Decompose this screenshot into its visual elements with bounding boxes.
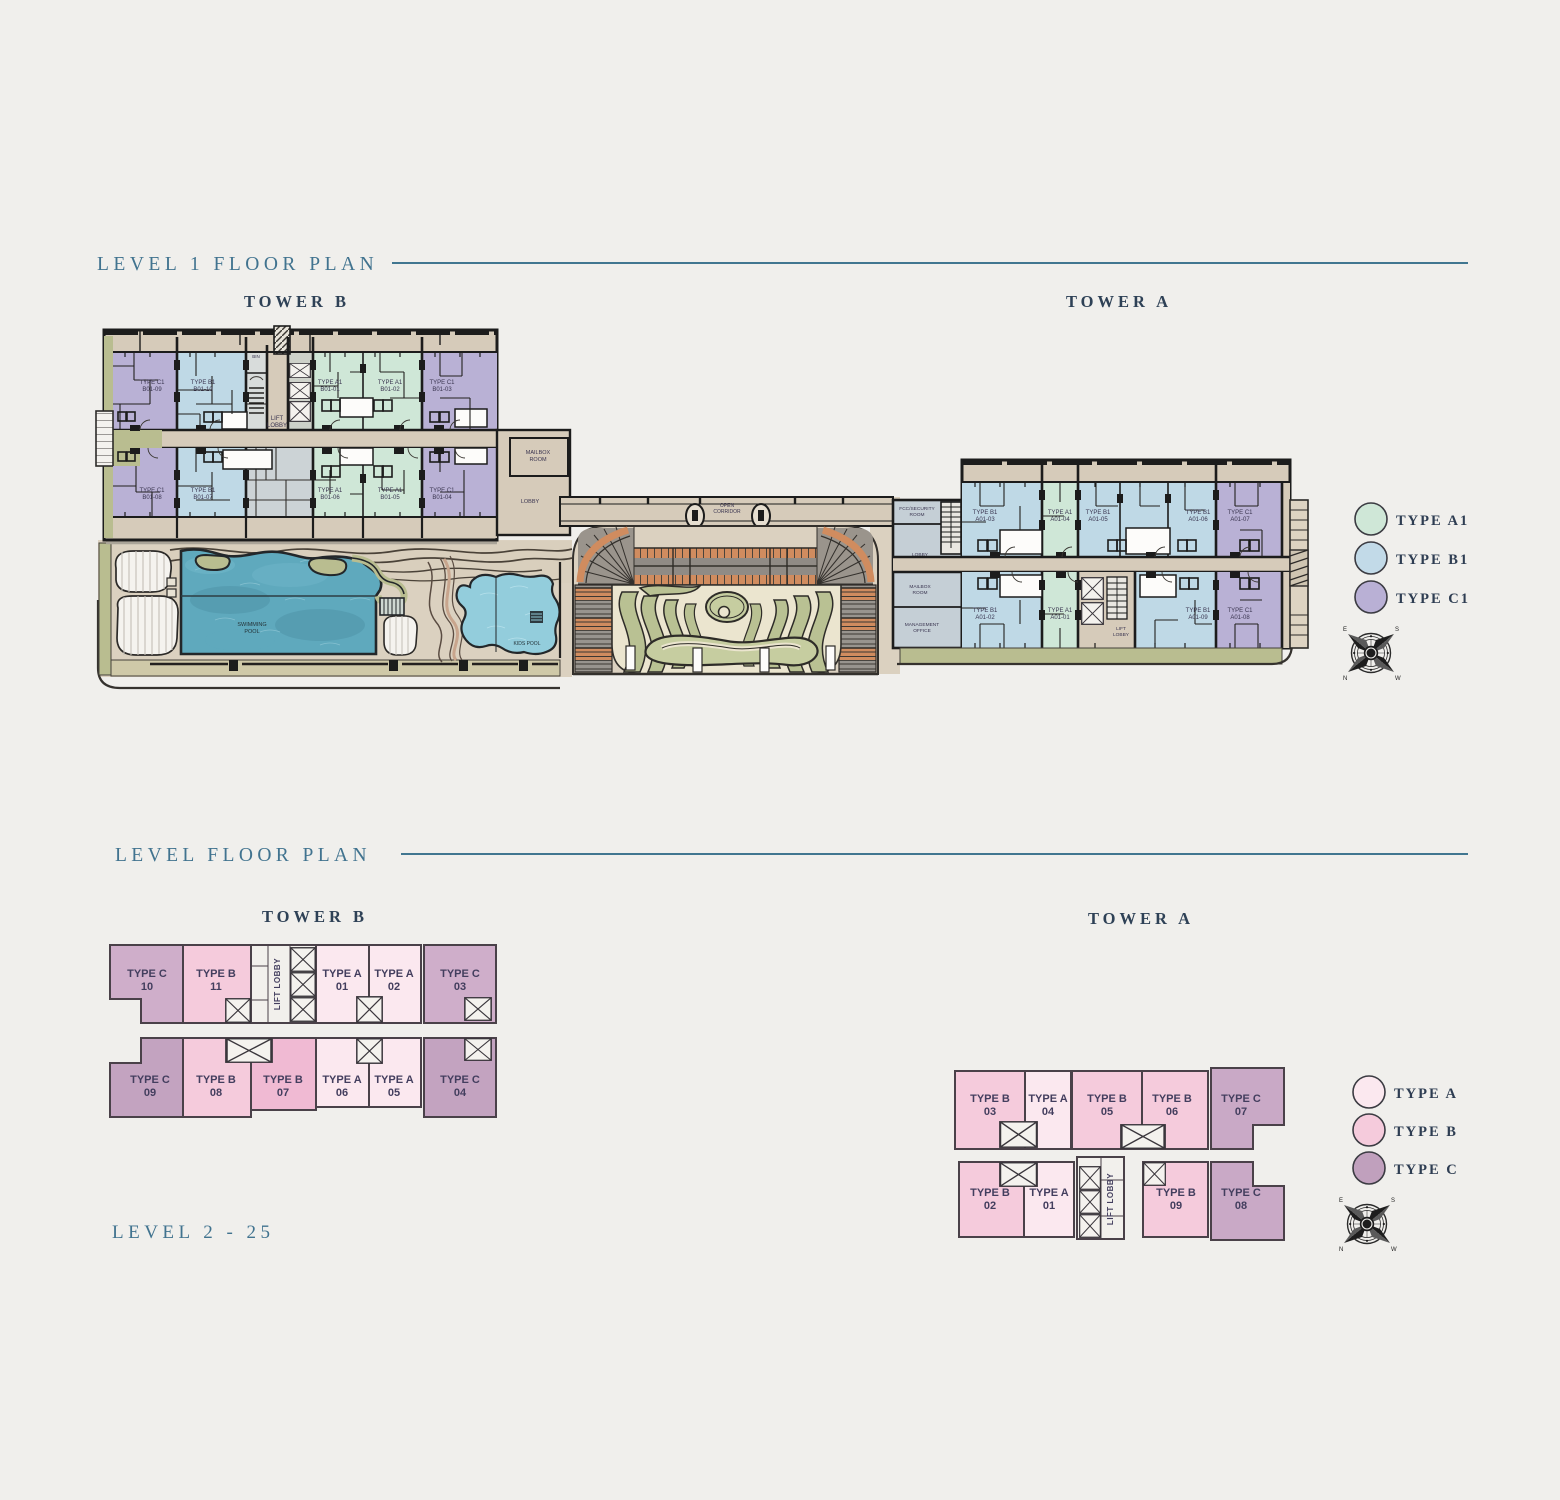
svg-text:ROOM: ROOM xyxy=(910,512,925,518)
svg-text:TYPE A1: TYPE A1 xyxy=(318,488,343,494)
svg-text:TYPE C1: TYPE C1 xyxy=(1227,510,1253,516)
svg-text:A01-02: A01-02 xyxy=(975,615,995,621)
svg-text:A01-09: A01-09 xyxy=(1188,615,1208,621)
svg-text:TYPE B: TYPE B xyxy=(970,1187,1010,1199)
svg-text:TYPE A1: TYPE A1 xyxy=(1048,608,1073,614)
svg-text:TYPE A: TYPE A xyxy=(1029,1187,1068,1199)
svg-text:TYPE C: TYPE C xyxy=(1394,1162,1459,1178)
svg-text:TYPE C: TYPE C xyxy=(130,1074,170,1086)
svg-text:B01-01: B01-01 xyxy=(320,387,340,393)
svg-text:TYPE B: TYPE B xyxy=(1087,1093,1127,1105)
svg-text:01: 01 xyxy=(336,981,348,993)
svg-text:TYPE B1: TYPE B1 xyxy=(1396,552,1469,568)
svg-text:B01-08: B01-08 xyxy=(142,495,162,501)
svg-text:B01-06: B01-06 xyxy=(320,495,340,501)
svg-text:TOWER A: TOWER A xyxy=(1066,292,1172,311)
svg-text:A01-07: A01-07 xyxy=(1230,517,1250,523)
svg-text:A01-05: A01-05 xyxy=(1088,517,1108,523)
svg-text:TYPE A1: TYPE A1 xyxy=(378,380,403,386)
svg-text:B01-02: B01-02 xyxy=(380,387,400,393)
svg-text:TYPE C: TYPE C xyxy=(440,968,480,980)
svg-text:SWIMMING: SWIMMING xyxy=(237,622,266,628)
svg-text:TYPE C: TYPE C xyxy=(1221,1187,1261,1199)
svg-text:B01-10: B01-10 xyxy=(193,387,213,393)
svg-text:TYPE B1: TYPE B1 xyxy=(973,510,998,516)
svg-text:01: 01 xyxy=(1043,1200,1055,1212)
svg-text:TYPE B: TYPE B xyxy=(196,968,236,980)
svg-text:TOWER B: TOWER B xyxy=(262,907,368,926)
svg-text:TYPE C: TYPE C xyxy=(440,1074,480,1086)
svg-text:LIFT LOBBY: LIFT LOBBY xyxy=(273,958,282,1010)
svg-text:03: 03 xyxy=(454,981,466,993)
svg-text:05: 05 xyxy=(1101,1106,1113,1118)
svg-text:TYPE B: TYPE B xyxy=(263,1074,303,1086)
svg-text:MAILBOX: MAILBOX xyxy=(909,584,931,590)
svg-text:TYPE B1: TYPE B1 xyxy=(191,488,216,494)
svg-text:TYPE C1: TYPE C1 xyxy=(139,380,165,386)
svg-text:02: 02 xyxy=(984,1200,996,1212)
svg-text:TOWER B: TOWER B xyxy=(244,292,350,311)
svg-text:LEVEL 1 FLOOR PLAN: LEVEL 1 FLOOR PLAN xyxy=(97,254,378,275)
svg-text:MANAGEMENT: MANAGEMENT xyxy=(905,622,939,628)
svg-text:07: 07 xyxy=(1235,1106,1247,1118)
svg-text:TYPE C1: TYPE C1 xyxy=(429,380,455,386)
svg-text:B01-09: B01-09 xyxy=(142,387,162,393)
svg-text:TYPE C1: TYPE C1 xyxy=(1227,608,1253,614)
svg-text:TYPE B: TYPE B xyxy=(1394,1124,1458,1140)
svg-text:02: 02 xyxy=(388,981,400,993)
svg-text:TYPE A: TYPE A xyxy=(1394,1086,1458,1102)
svg-text:06: 06 xyxy=(1166,1106,1178,1118)
svg-text:TYPE B: TYPE B xyxy=(1156,1187,1196,1199)
svg-text:A01-08: A01-08 xyxy=(1230,615,1250,621)
svg-text:TYPE C: TYPE C xyxy=(1221,1093,1261,1105)
svg-text:TYPE A1: TYPE A1 xyxy=(1396,513,1469,529)
svg-text:ROOM: ROOM xyxy=(913,590,928,596)
svg-text:04: 04 xyxy=(454,1087,467,1099)
svg-text:LIFT: LIFT xyxy=(1116,626,1126,632)
svg-text:TYPE C: TYPE C xyxy=(127,968,167,980)
svg-text:LOBBY: LOBBY xyxy=(267,423,287,429)
svg-text:TYPE B1: TYPE B1 xyxy=(973,608,998,614)
svg-text:TYPE B: TYPE B xyxy=(970,1093,1010,1105)
svg-text:TYPE B1: TYPE B1 xyxy=(191,380,216,386)
svg-text:A01-01: A01-01 xyxy=(1050,615,1070,621)
svg-text:BIN: BIN xyxy=(252,354,260,359)
svg-text:TYPE A: TYPE A xyxy=(374,1074,413,1086)
svg-text:TYPE A1: TYPE A1 xyxy=(318,380,343,386)
svg-text:B01-03: B01-03 xyxy=(432,387,452,393)
svg-text:TYPE A: TYPE A xyxy=(322,968,361,980)
svg-text:A01-04: A01-04 xyxy=(1050,517,1070,523)
svg-text:LOBBY: LOBBY xyxy=(521,499,540,505)
svg-text:TYPE A: TYPE A xyxy=(1028,1093,1067,1105)
svg-text:08: 08 xyxy=(1235,1200,1247,1212)
svg-text:B01-05: B01-05 xyxy=(380,495,400,501)
svg-text:TYPE C1: TYPE C1 xyxy=(139,488,165,494)
svg-text:TYPE B: TYPE B xyxy=(196,1074,236,1086)
svg-text:04: 04 xyxy=(1042,1106,1055,1118)
svg-text:TYPE B: TYPE B xyxy=(1152,1093,1192,1105)
svg-text:05: 05 xyxy=(388,1087,400,1099)
svg-text:TYPE B1: TYPE B1 xyxy=(1086,510,1111,516)
svg-text:LOBBY: LOBBY xyxy=(1113,632,1130,638)
svg-text:TOWER A: TOWER A xyxy=(1088,909,1194,928)
svg-text:TYPE A: TYPE A xyxy=(374,968,413,980)
svg-text:LIFT LOBBY: LIFT LOBBY xyxy=(1106,1173,1115,1225)
svg-text:A01-06: A01-06 xyxy=(1188,517,1208,523)
svg-text:KIDS POOL: KIDS POOL xyxy=(514,641,541,647)
svg-text:11: 11 xyxy=(210,981,222,993)
svg-text:OFFICE: OFFICE xyxy=(913,628,931,634)
svg-text:MAILBOX: MAILBOX xyxy=(526,450,551,456)
svg-text:B01-07: B01-07 xyxy=(193,495,213,501)
svg-text:09: 09 xyxy=(1170,1200,1182,1212)
svg-text:TYPE B1: TYPE B1 xyxy=(1186,608,1211,614)
svg-text:06: 06 xyxy=(336,1087,348,1099)
svg-text:TYPE A1: TYPE A1 xyxy=(1048,510,1073,516)
svg-text:07: 07 xyxy=(277,1087,289,1099)
svg-text:B01-04: B01-04 xyxy=(432,495,452,501)
svg-text:03: 03 xyxy=(984,1106,996,1118)
svg-text:LIFT: LIFT xyxy=(271,416,284,422)
svg-text:CORRIDOR: CORRIDOR xyxy=(713,509,741,515)
svg-text:TYPE C1: TYPE C1 xyxy=(429,488,455,494)
svg-text:TYPE A: TYPE A xyxy=(322,1074,361,1086)
svg-text:09: 09 xyxy=(144,1087,156,1099)
svg-text:08: 08 xyxy=(210,1087,222,1099)
svg-text:POOL: POOL xyxy=(244,629,259,635)
svg-text:FCC/SECURITY: FCC/SECURITY xyxy=(899,506,935,512)
svg-text:ROOM: ROOM xyxy=(529,457,547,463)
svg-text:LEVEL FLOOR PLAN: LEVEL FLOOR PLAN xyxy=(115,845,371,866)
svg-text:TYPE B1: TYPE B1 xyxy=(1186,510,1211,516)
svg-text:TYPE C1: TYPE C1 xyxy=(1396,591,1470,607)
svg-text:LEVEL 2 - 25: LEVEL 2 - 25 xyxy=(112,1222,275,1243)
svg-text:10: 10 xyxy=(141,981,153,993)
svg-text:TYPE A1: TYPE A1 xyxy=(378,488,403,494)
svg-text:A01-03: A01-03 xyxy=(975,517,995,523)
